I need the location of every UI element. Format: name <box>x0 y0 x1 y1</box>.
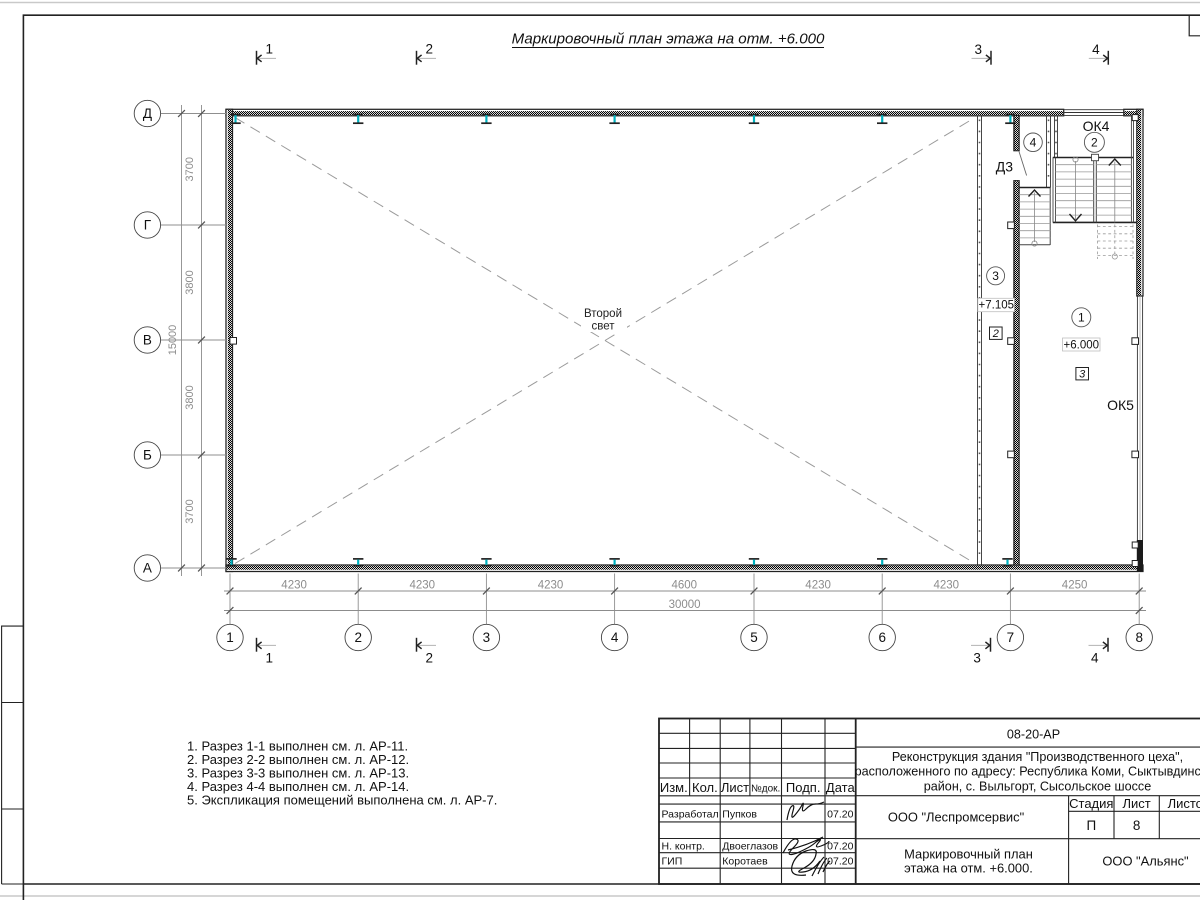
svg-text:расположенного по адресу: Респ: расположенного по адресу: Республика Ком… <box>855 765 1200 779</box>
svg-text:2: 2 <box>1091 136 1098 150</box>
svg-text:ОК4: ОК4 <box>1083 118 1110 134</box>
svg-text:3: 3 <box>1079 369 1086 381</box>
svg-text:07.20: 07.20 <box>827 808 853 820</box>
svg-text:Второй: Второй <box>584 308 622 320</box>
svg-text:1: 1 <box>226 630 234 645</box>
svg-text:Н. контр.: Н. контр. <box>662 841 705 853</box>
svg-text:ООО "Леспромсервис": ООО "Леспромсервис" <box>888 810 1025 825</box>
svg-text:3700: 3700 <box>184 499 196 523</box>
svg-text:3: 3 <box>992 269 999 283</box>
svg-text:Лист: Лист <box>721 780 749 795</box>
svg-text:Лист: Лист <box>1122 796 1150 811</box>
svg-text:ООО "Альянс": ООО "Альянс" <box>1102 853 1189 868</box>
svg-text:ГИП: ГИП <box>662 856 683 868</box>
svg-text:Изм.: Изм. <box>660 780 688 795</box>
svg-text:30000: 30000 <box>669 599 701 611</box>
svg-text:15000: 15000 <box>167 325 179 356</box>
svg-text:Дата: Дата <box>826 780 856 795</box>
svg-text:Подп.: Подп. <box>786 780 821 795</box>
svg-text:8: 8 <box>1133 818 1141 833</box>
svg-text:1: 1 <box>1078 311 1085 325</box>
svg-text:4230: 4230 <box>805 579 831 591</box>
svg-text:2: 2 <box>992 328 999 340</box>
svg-text:+6.000: +6.000 <box>1064 339 1100 351</box>
svg-text:свет: свет <box>591 321 615 333</box>
svg-text:1: 1 <box>266 651 274 666</box>
svg-text:Б: Б <box>143 448 152 463</box>
svg-text:4: 4 <box>1092 42 1100 57</box>
svg-text:Г: Г <box>144 218 152 233</box>
svg-text:7: 7 <box>1007 630 1015 645</box>
svg-text:Реконструкция здания "Производ: Реконструкция здания "Производственного … <box>892 750 1183 764</box>
svg-text:4230: 4230 <box>281 579 307 591</box>
svg-text:4: 4 <box>1030 136 1037 150</box>
svg-text:Коротаев: Коротаев <box>722 856 768 868</box>
svg-text:Кол.: Кол. <box>692 780 718 795</box>
svg-text:3700: 3700 <box>184 157 196 181</box>
svg-text:3800: 3800 <box>184 385 196 409</box>
svg-text:А: А <box>143 561 152 576</box>
svg-text:Д: Д <box>143 106 152 121</box>
svg-text:+7.105: +7.105 <box>979 300 1015 312</box>
svg-text:4230: 4230 <box>934 579 960 591</box>
svg-text:6: 6 <box>878 630 886 645</box>
svg-text:3800: 3800 <box>184 270 196 294</box>
svg-text:4: 4 <box>1091 651 1099 666</box>
svg-text:3: 3 <box>483 630 491 645</box>
svg-text:Д3: Д3 <box>996 159 1013 175</box>
svg-text:Стадия: Стадия <box>1069 796 1113 811</box>
svg-text:2: 2 <box>354 630 362 645</box>
svg-text:07.20: 07.20 <box>827 855 853 867</box>
svg-text:№док.: №док. <box>751 783 780 794</box>
svg-text:Пупков: Пупков <box>722 809 757 821</box>
svg-text:4600: 4600 <box>672 579 698 591</box>
svg-text:2: 2 <box>426 651 434 666</box>
svg-text:район, с. Выльгорт, Сысольское: район, с. Выльгорт, Сысольское шоссе <box>924 779 1151 793</box>
svg-text:08-20-АР: 08-20-АР <box>1007 728 1060 742</box>
svg-text:П: П <box>1086 818 1096 833</box>
svg-text:Двоеглазов: Двоеглазов <box>722 841 778 853</box>
svg-text:ОК5: ОК5 <box>1107 397 1134 413</box>
svg-text:Разработал: Разработал <box>662 809 719 821</box>
svg-text:Листов: Листов <box>1168 796 1200 811</box>
svg-text:Маркировочный план этажа на от: Маркировочный план этажа на отм. +6.000 <box>512 31 825 48</box>
svg-text:4250: 4250 <box>1062 579 1088 591</box>
svg-text:5: 5 <box>750 630 758 645</box>
svg-text:4: 4 <box>611 630 619 645</box>
svg-text:1: 1 <box>265 41 273 56</box>
svg-text:3: 3 <box>973 651 981 666</box>
svg-text:В: В <box>143 333 152 348</box>
svg-text:8: 8 <box>1135 630 1143 645</box>
svg-text:5. Экспликация помещений выпол: 5. Экспликация помещений выполнена см. л… <box>187 793 497 808</box>
svg-text:4230: 4230 <box>538 579 564 591</box>
svg-text:Маркировочный план: Маркировочный план <box>904 846 1033 861</box>
svg-text:3: 3 <box>974 42 982 57</box>
svg-text:2: 2 <box>425 41 433 56</box>
svg-text:07.20: 07.20 <box>827 840 853 852</box>
svg-text:4230: 4230 <box>410 579 436 591</box>
svg-text:этажа на отм. +6.000.: этажа на отм. +6.000. <box>904 861 1033 876</box>
